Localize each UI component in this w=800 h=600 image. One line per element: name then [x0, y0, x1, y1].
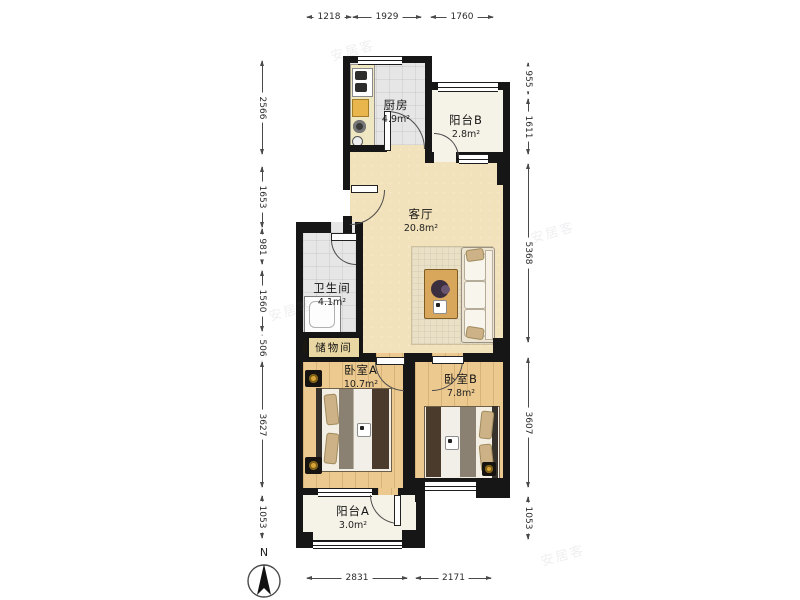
- dim-bottom-1: 2831: [306, 571, 408, 585]
- stove-burner: [355, 71, 367, 80]
- dim-top-2: 1929: [352, 10, 422, 24]
- table-decor-icon: [433, 300, 447, 314]
- dim-left-2: 1653: [255, 166, 269, 228]
- watermark: 安居客: [538, 539, 587, 570]
- compass: N: [238, 546, 290, 600]
- kitchen-cabinet: [352, 99, 369, 117]
- floorplan-canvas: 厨房 4.9m² 阳台B 2.8m² 客厅 20.8m² 卫生间 4.1m² 储…: [0, 0, 800, 600]
- bed-b-blanket: [426, 407, 441, 477]
- balcony-a-door: [394, 495, 401, 526]
- stove-burner: [355, 83, 367, 92]
- nightstand-lamp: [305, 370, 322, 387]
- dim-left-6: 3627: [255, 361, 269, 488]
- bathroom-door: [331, 233, 357, 241]
- dim-bottom-2: 2171: [415, 571, 492, 585]
- dim-right-2: 1611: [521, 98, 535, 155]
- room-label-balcony-a: 阳台A 3.0m²: [336, 503, 370, 531]
- bedroom-b-door: [432, 356, 464, 364]
- balcony-b-window: [438, 82, 498, 92]
- dim-left-3: 981: [255, 228, 269, 265]
- room-label-balcony-b: 阳台B 2.8m²: [449, 112, 483, 140]
- dim-left-7: 1053: [255, 495, 269, 539]
- sink-icon: [353, 120, 366, 133]
- nightstand-lamp: [305, 457, 322, 474]
- balcony-b-inner-window: [459, 154, 488, 164]
- bed-a-decor-icon: [357, 423, 371, 437]
- sofa-cushion: [464, 281, 486, 309]
- sofa-pillow: [465, 326, 485, 341]
- bed-b-decor-icon: [445, 436, 459, 450]
- north-arrow-icon: [238, 559, 290, 600]
- room-label-bathroom: 卫生间 4.1m²: [313, 280, 351, 308]
- room-label-living: 客厅 20.8m²: [404, 206, 438, 234]
- sofa-pillow: [465, 248, 484, 262]
- balcony-a-window: [313, 541, 402, 549]
- room-label-kitchen: 厨房 4.9m²: [382, 97, 410, 125]
- dim-right-4: 3607: [521, 357, 535, 488]
- watermark: 安居客: [528, 216, 577, 247]
- plant-leaf: [441, 285, 450, 294]
- bedroom-a-window: [318, 488, 372, 497]
- balcony-a-doorway: [378, 488, 398, 495]
- room-label-bedroom-a: 卧室A 10.7m²: [344, 362, 378, 390]
- nightstand-lamp: [482, 462, 496, 476]
- bed-a-runner: [372, 389, 389, 469]
- bedroom-a-door: [376, 357, 405, 365]
- dim-right-1: 955: [521, 62, 535, 95]
- bed-a-blanket: [339, 389, 353, 469]
- dim-top-1: 1218: [306, 10, 352, 24]
- room-label-bedroom-b: 卧室B 7.8m²: [444, 371, 478, 399]
- dim-left-1: 2566: [255, 60, 269, 155]
- room-label-storage: 储物间: [307, 336, 361, 359]
- compass-north-label: N: [238, 546, 290, 559]
- dim-left-4: 1560: [255, 270, 269, 332]
- bed-b-runner: [460, 407, 476, 477]
- entry-door: [351, 185, 378, 193]
- dim-left-5: 506: [255, 334, 269, 361]
- bedroom-b-window: [425, 481, 476, 491]
- dim-right-3: 5368: [521, 163, 535, 343]
- dim-top-3: 1760: [430, 10, 494, 24]
- dim-right-5: 1053: [521, 496, 535, 540]
- kitchen-window: [358, 56, 402, 65]
- sofa-back: [485, 250, 493, 340]
